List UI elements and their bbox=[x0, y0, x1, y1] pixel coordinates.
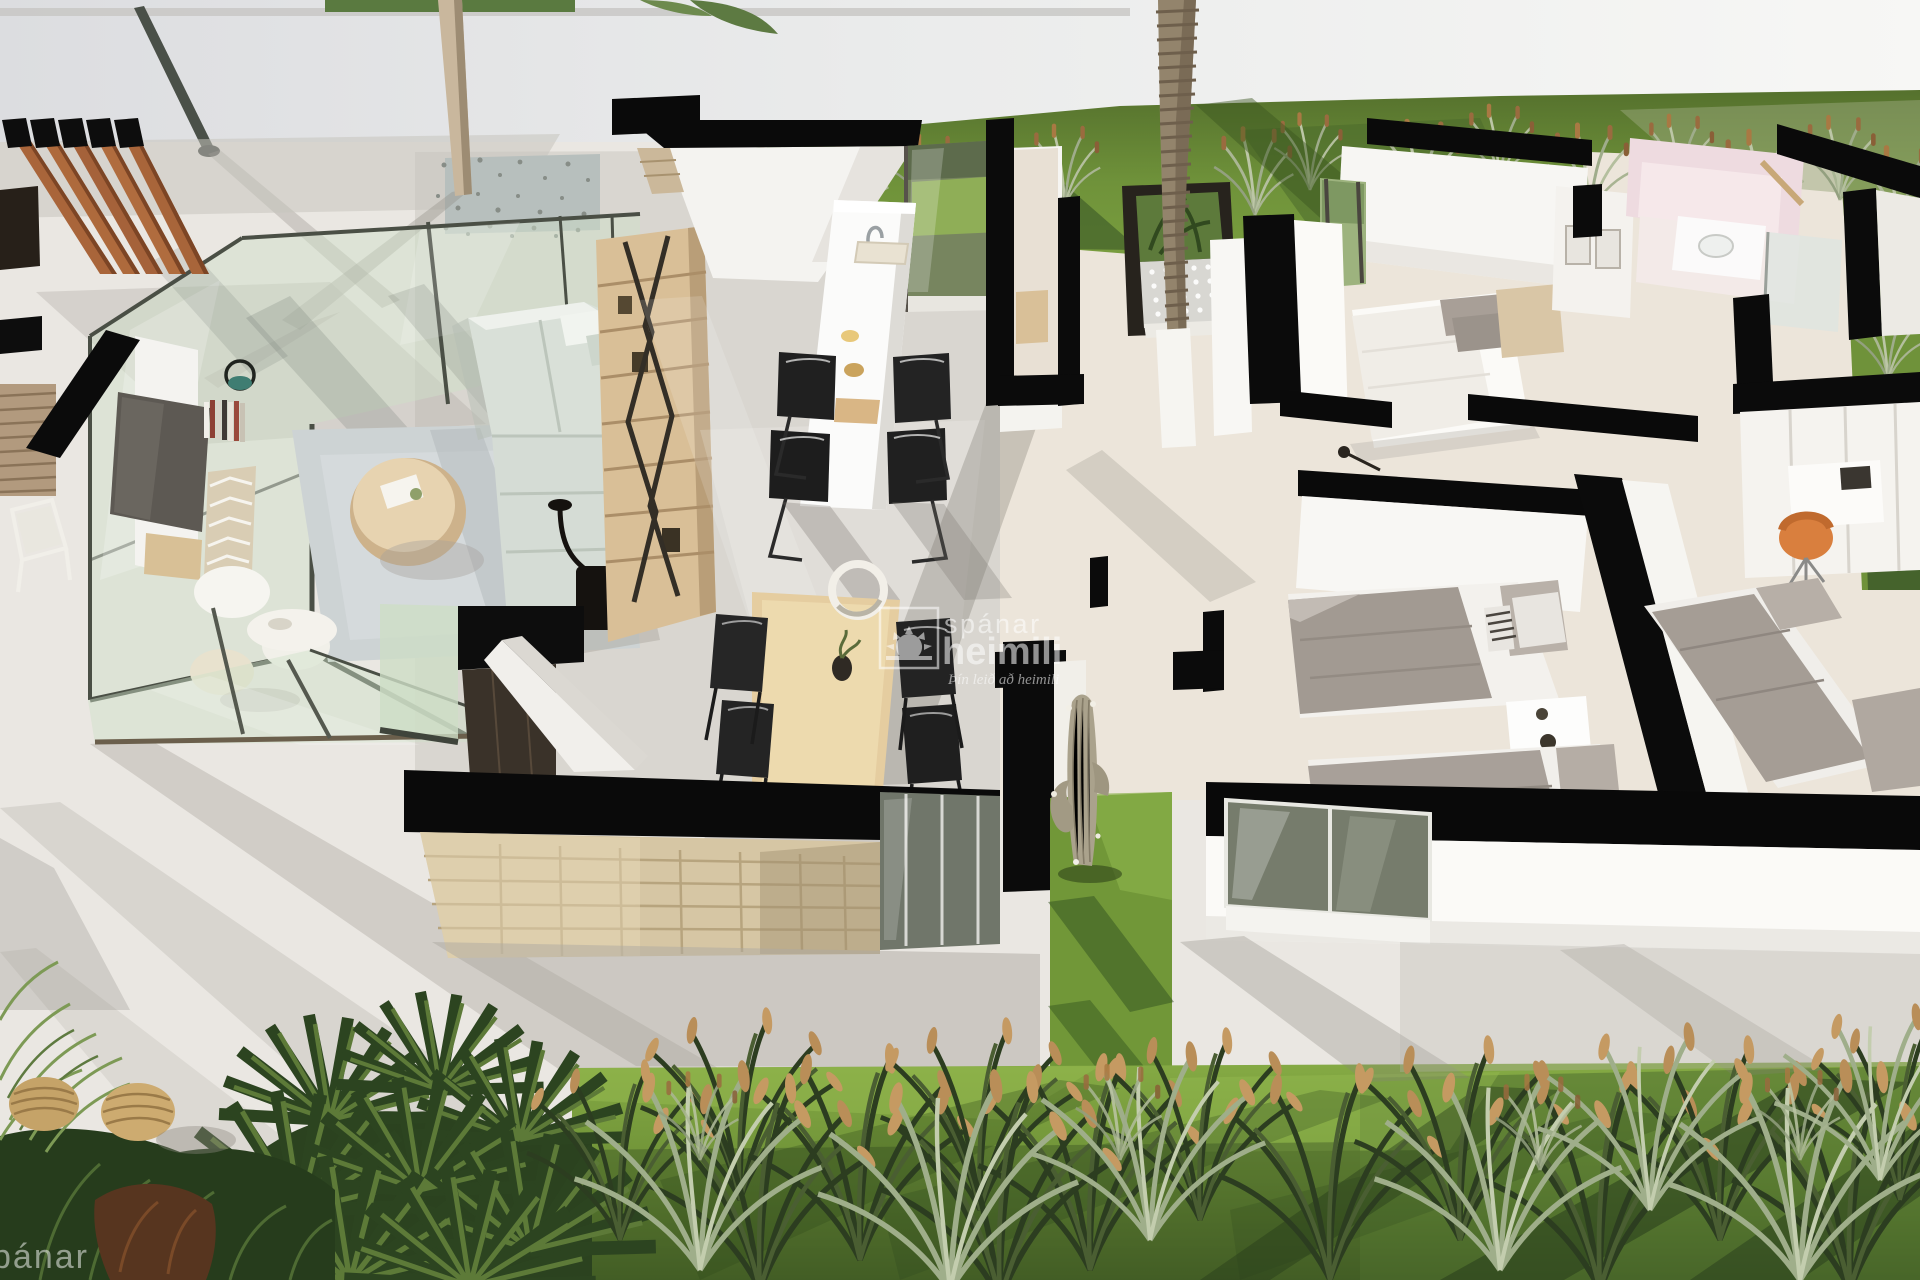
svg-text:Þín leið að heimili: Þín leið að heimili bbox=[947, 672, 1059, 688]
svg-text:heimili: heimili bbox=[942, 631, 1062, 673]
svg-text:pánar: pánar bbox=[0, 1238, 89, 1276]
